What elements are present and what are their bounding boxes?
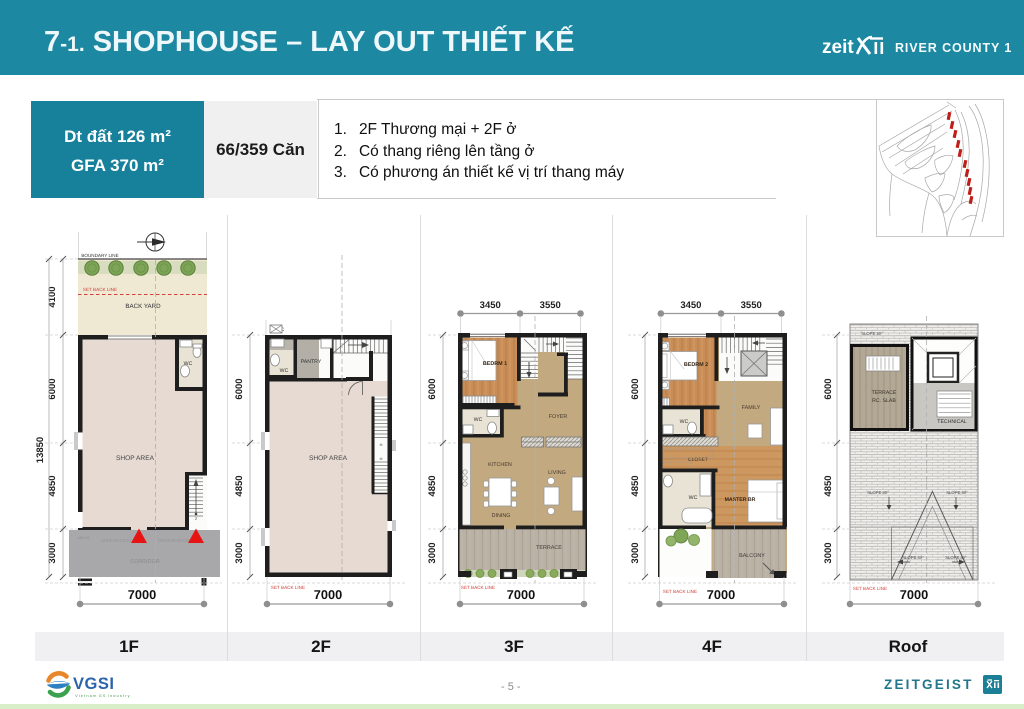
svg-text:7000: 7000 [507,587,535,602]
svg-text:SLOPE 30°: SLOPE 30° [861,331,883,336]
svg-text:3550: 3550 [741,300,762,311]
svg-text:6000: 6000 [427,378,438,399]
svg-text:3550: 3550 [540,300,561,311]
svg-text:TERRACE: TERRACE [536,545,562,551]
svg-text:7000: 7000 [314,587,342,602]
svg-text:SLOPE 30°: SLOPE 30° [867,490,889,495]
svg-text:13850: 13850 [35,437,46,463]
svg-text:WC: WC [184,361,193,367]
svg-text:SET BACK LINE: SET BACK LINE [461,585,495,590]
svg-text:6000: 6000 [823,378,834,399]
svg-text:RC. SLAB: RC. SLAB [872,398,896,404]
svg-text:4850: 4850 [427,475,438,496]
svg-text:7000: 7000 [900,587,928,602]
svg-text:BEDRM 1: BEDRM 1 [483,361,507,367]
svg-text:SLOPE 30°: SLOPE 30° [946,490,968,495]
svg-text:TERRACE: TERRACE [872,390,897,396]
svg-text:DINING: DINING [492,513,511,519]
svg-text:SET BACK LINE: SET BACK LINE [663,589,697,594]
svg-text:MASTER BR: MASTER BR [725,497,756,503]
svg-text:WC: WC [680,419,689,425]
svg-text:LIVING: LIVING [548,470,566,476]
svg-text:SHOP AREA: SHOP AREA [116,455,155,462]
svg-text:3450: 3450 [480,300,501,311]
svg-text:4850: 4850 [234,475,245,496]
svg-text:4850: 4850 [630,475,641,496]
svg-text:KITCHEN: KITCHEN [488,462,512,468]
svg-text:MB KB: MB KB [78,536,90,540]
svg-text:6000: 6000 [234,378,245,399]
svg-text:7000: 7000 [128,587,156,602]
svg-text:SLOPE 30°: SLOPE 30° [902,555,924,560]
svg-text:4850: 4850 [823,475,834,496]
svg-text:BEDRM 2: BEDRM 2 [684,362,708,368]
svg-text:3000: 3000 [823,542,834,563]
svg-text:FAMILY: FAMILY [742,405,761,411]
svg-text:SET BACK LINE: SET BACK LINE [853,586,887,591]
svg-text:FOYER: FOYER [549,414,568,420]
svg-text:6000: 6000 [630,378,641,399]
svg-text:3000: 3000 [234,542,245,563]
svg-text:3000: 3000 [427,542,438,563]
svg-text:M: M [380,443,383,447]
svg-text:WC: WC [474,417,483,423]
svg-text:TECHNICAL: TECHNICAL [937,419,967,425]
svg-text:SET BACK LINE: SET BACK LINE [83,287,117,292]
svg-text:PANTRY: PANTRY [301,359,322,365]
svg-text:7000: 7000 [707,587,735,602]
svg-text:SLOPE 30°: SLOPE 30° [945,555,967,560]
svg-text:SET BACK LINE: SET BACK LINE [271,585,305,590]
svg-text:WC: WC [280,368,289,374]
svg-text:WC: WC [689,495,698,501]
svg-text:3450: 3450 [680,300,701,311]
svg-text:M: M [380,457,383,461]
svg-text:SHOP ACCESS: SHOP ACCESS [101,538,131,543]
svg-text:3000: 3000 [630,542,641,563]
svg-text:BOUNDARY LINE: BOUNDARY LINE [81,253,118,258]
svg-text:BALCONY: BALCONY [739,553,765,559]
